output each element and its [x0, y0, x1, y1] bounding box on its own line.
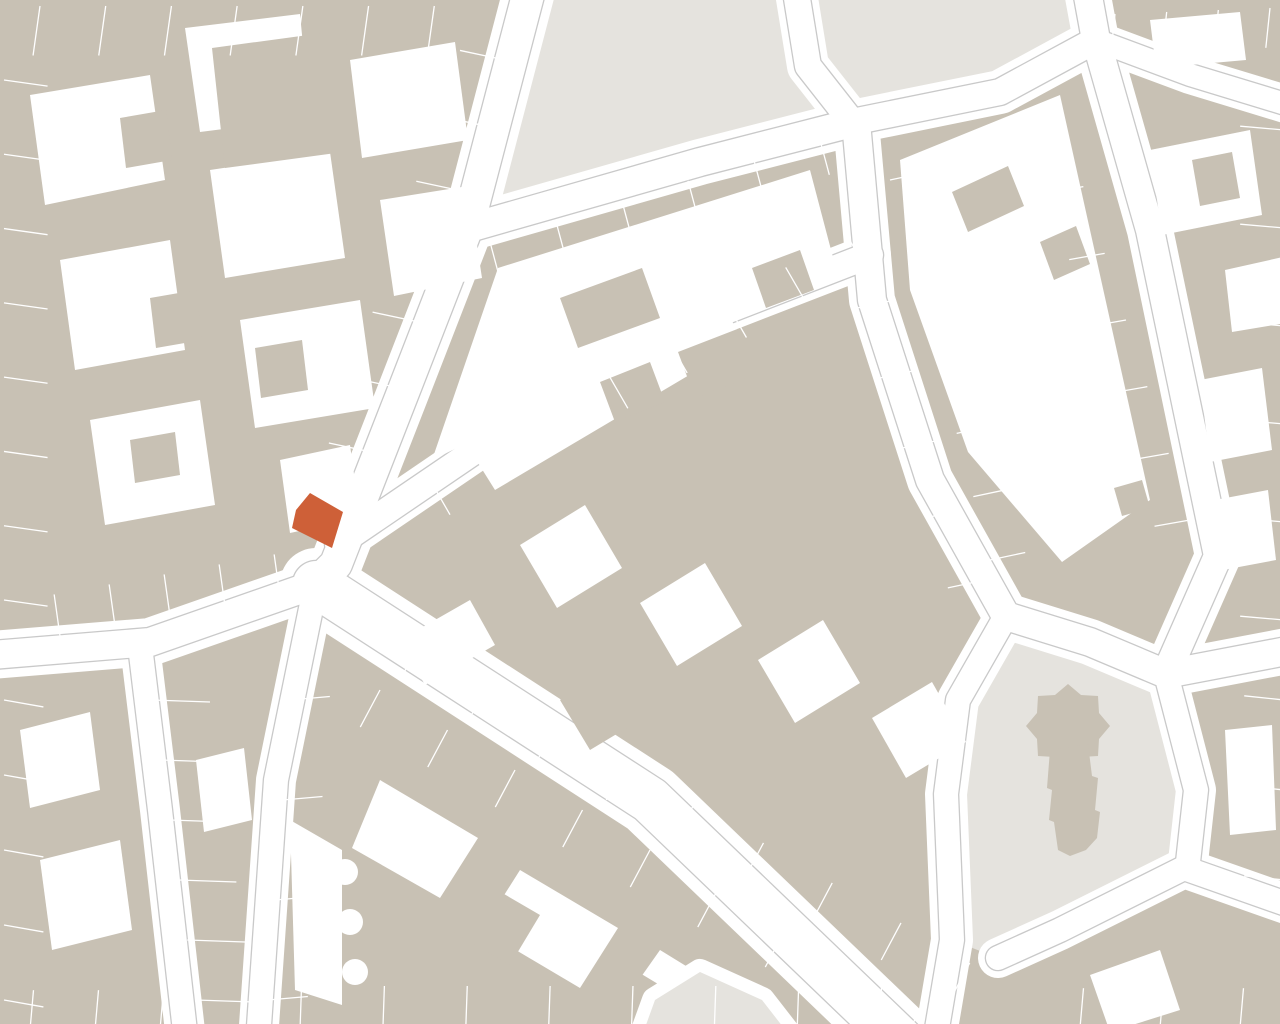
courtyard — [196, 748, 252, 832]
courtyard — [332, 859, 358, 885]
inner-building — [150, 290, 202, 348]
inner-building — [130, 432, 180, 483]
inner-building — [1192, 152, 1240, 206]
courtyard — [1200, 368, 1272, 462]
inner-building — [212, 30, 358, 168]
site-plan-svg — [0, 0, 1280, 1024]
courtyard — [1225, 725, 1276, 835]
courtyard — [337, 909, 363, 935]
inner-building — [120, 110, 172, 168]
inner-building — [255, 340, 308, 398]
courtyard — [1150, 12, 1246, 68]
courtyard — [342, 959, 368, 985]
courtyard — [350, 42, 468, 158]
courtyard — [380, 186, 482, 296]
courtyard — [290, 820, 342, 1005]
site-plan-map — [0, 0, 1280, 1024]
courtyard — [210, 152, 345, 278]
courtyard — [1215, 490, 1276, 570]
